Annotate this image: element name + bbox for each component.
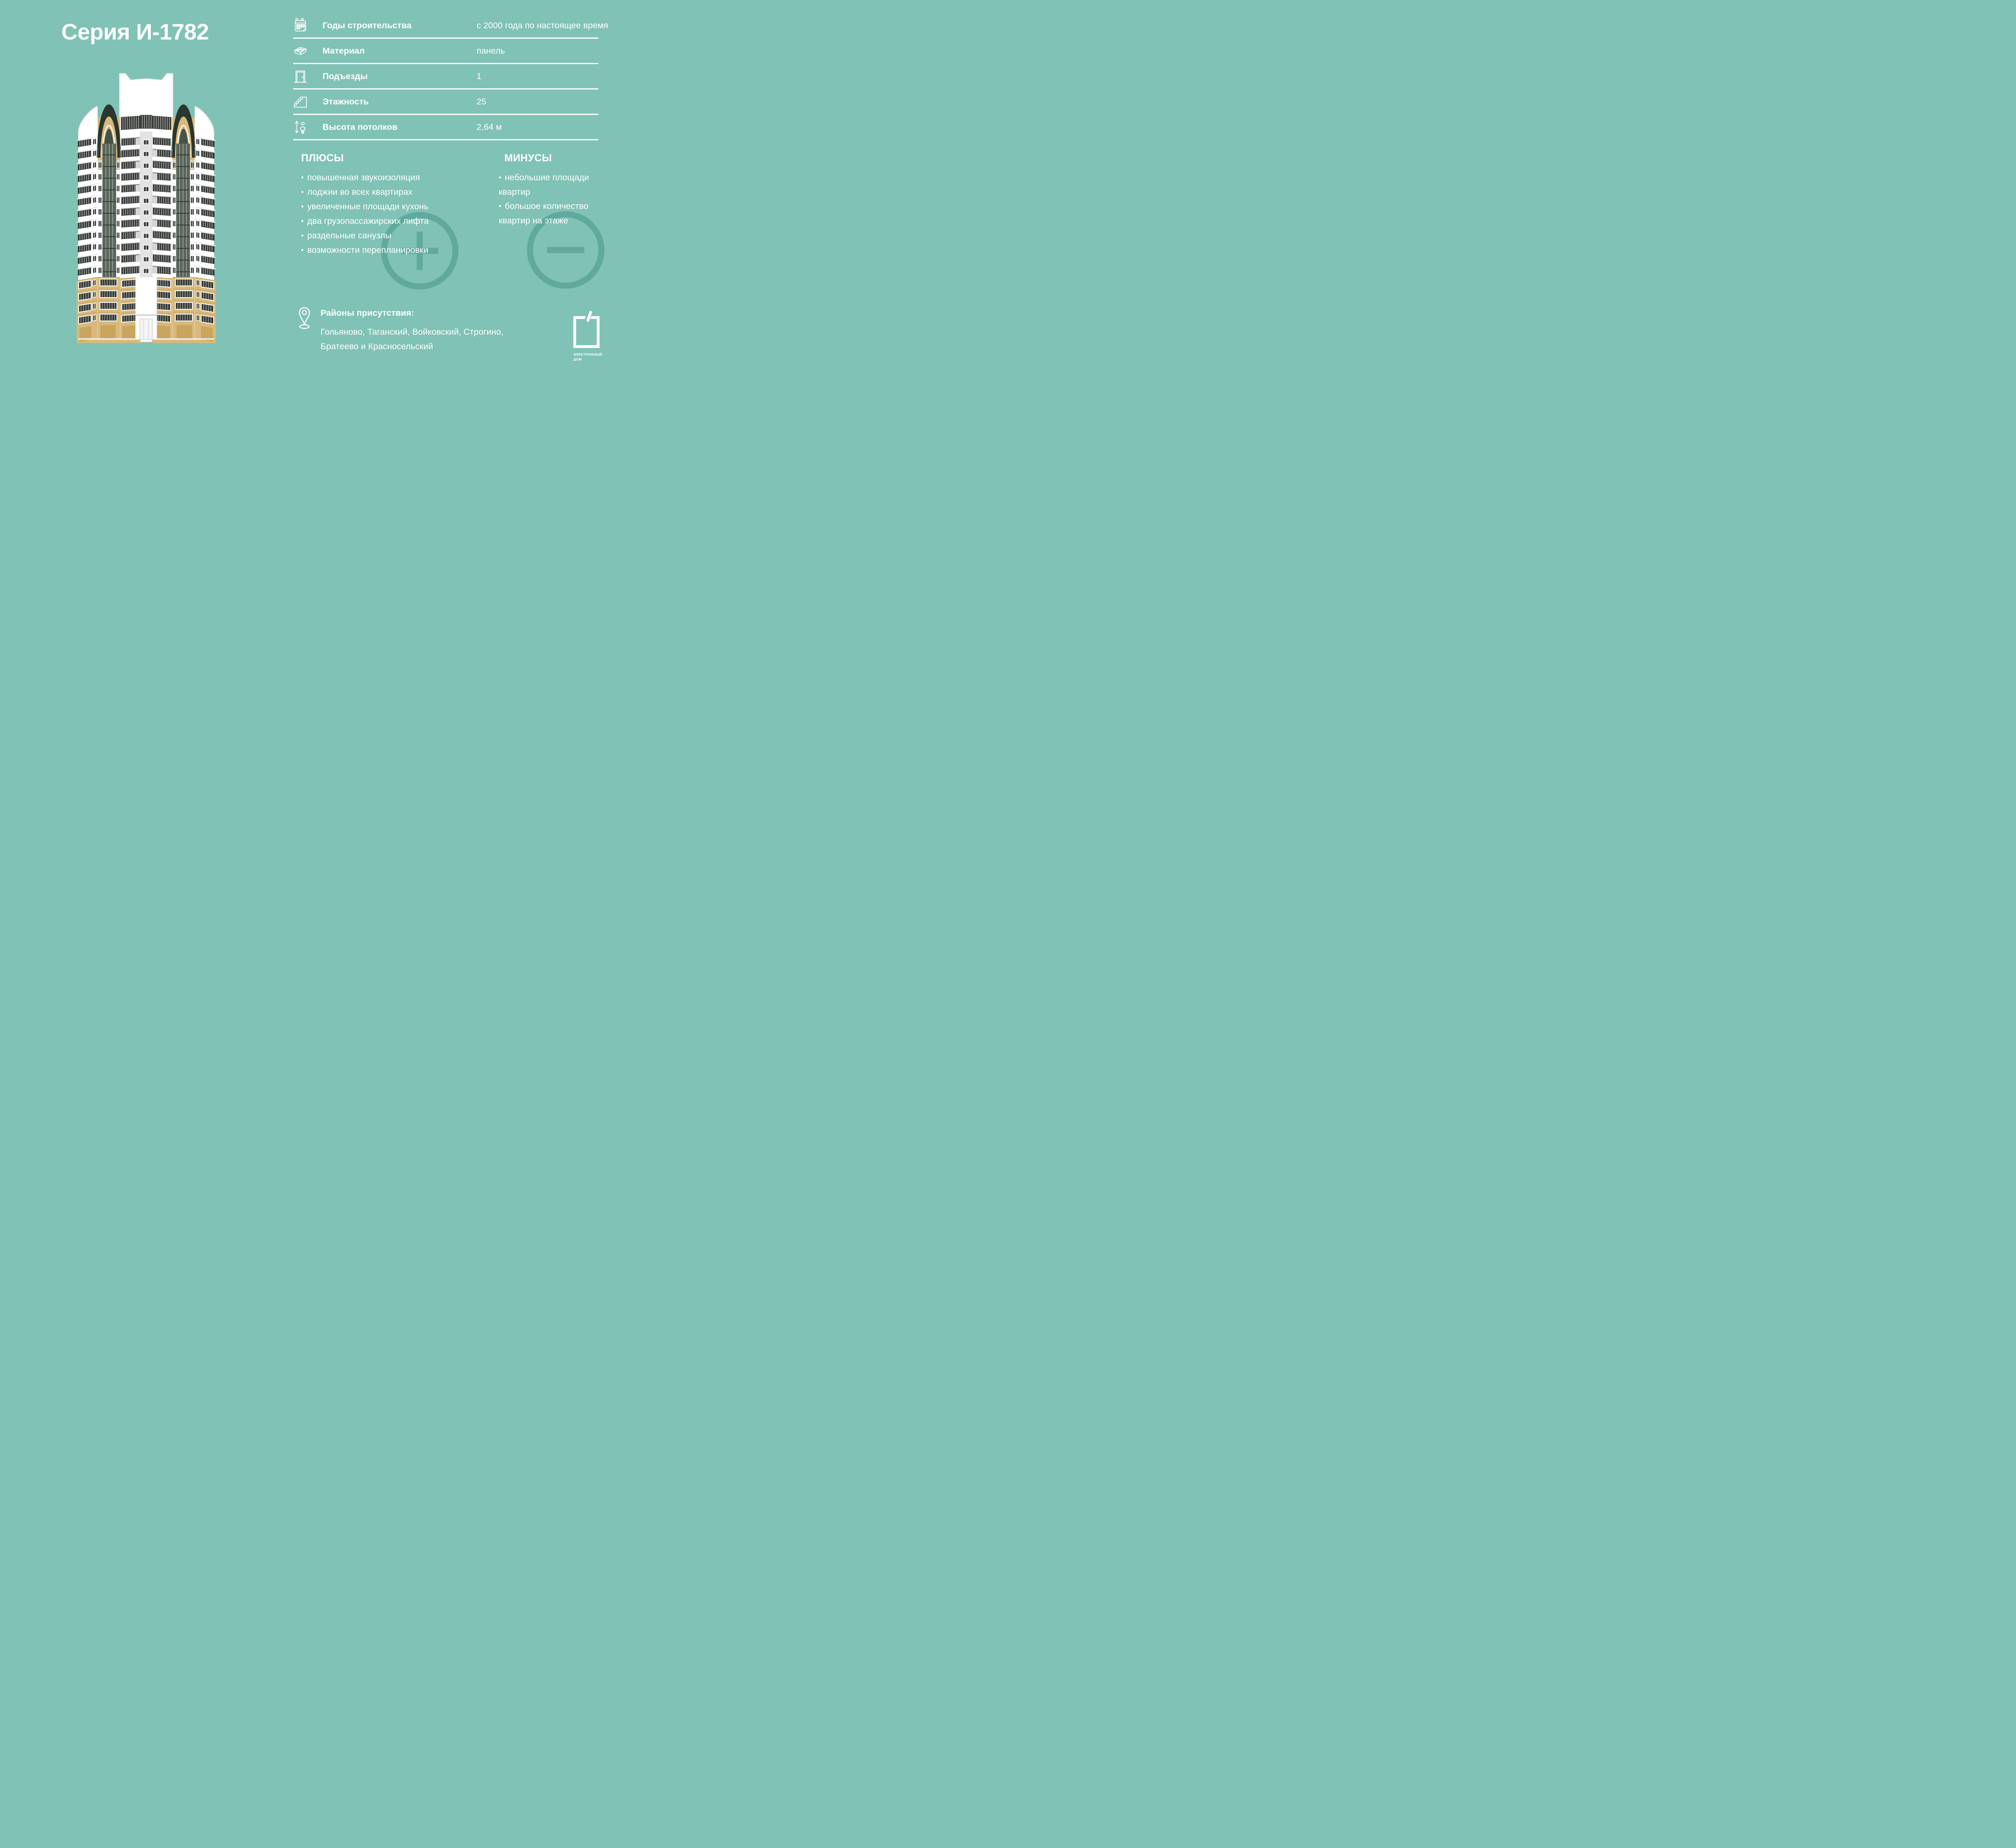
districts-text: Гольяново, Таганский, Войковский, Строги… bbox=[321, 325, 504, 354]
page-title: Серия И-1782 bbox=[61, 19, 209, 45]
spec-label: Материал bbox=[323, 46, 365, 56]
calendar-icon bbox=[293, 17, 308, 34]
cons-list: •небольшие площади квартир •большое коли… bbox=[499, 171, 603, 228]
spec-label: Годы строительства bbox=[323, 21, 412, 31]
stairs-icon bbox=[293, 93, 308, 110]
spec-row-years: Годы строительства с 2000 года по настоя… bbox=[293, 13, 598, 39]
cons-heading: МИНУСЫ bbox=[504, 152, 552, 164]
spec-row-entrances: Подъезды 1 bbox=[293, 64, 598, 90]
spec-label: Этажность bbox=[323, 97, 369, 107]
spec-value: панель bbox=[477, 46, 505, 56]
spec-row-material: Материал панель bbox=[293, 39, 598, 64]
spec-row-ceiling: Высота потолков 2,64 м bbox=[293, 115, 598, 140]
building-illustration bbox=[77, 61, 216, 343]
door-icon bbox=[293, 67, 308, 85]
pros-heading: ПЛЮСЫ bbox=[301, 152, 344, 164]
spec-label: Подъезды bbox=[323, 71, 368, 81]
pros-item: •повышенная звукоизоляция bbox=[301, 171, 429, 185]
bullet-dot: • bbox=[301, 243, 304, 257]
pros-item: •увеличенные площади кухонь bbox=[301, 200, 429, 214]
districts-heading: Районы присутствия: bbox=[321, 308, 414, 318]
spec-row-floors: Этажность 25 bbox=[293, 90, 598, 115]
cons-item: •небольшие площади квартир bbox=[499, 171, 603, 199]
bullet-dot: • bbox=[301, 171, 304, 185]
cons-item: •большое количество квартир на этаже bbox=[499, 199, 603, 228]
bullet-dot: • bbox=[301, 185, 304, 199]
bullet-dot: • bbox=[301, 200, 304, 214]
pros-item: •лоджии во всех квартирах bbox=[301, 185, 429, 200]
bullet-dot: • bbox=[499, 199, 501, 213]
brick-icon bbox=[293, 42, 308, 60]
spec-value: с 2000 года по настоящее время bbox=[477, 21, 608, 31]
pros-item: •возможности перепланировки bbox=[301, 243, 429, 258]
spec-value: 2,64 м bbox=[477, 122, 502, 132]
pros-list: •повышенная звукоизоляция •лоджии во все… bbox=[301, 171, 429, 258]
location-pin-icon bbox=[297, 306, 312, 331]
bullet-dot: • bbox=[499, 171, 501, 185]
infographic-page: Серия И-1782 Годы строительства с 2000 г… bbox=[0, 0, 638, 370]
pros-item: •два грузопассажирских лифта bbox=[301, 214, 429, 229]
spec-label: Высота потолков bbox=[323, 122, 398, 132]
ceiling-height-icon bbox=[293, 118, 308, 136]
bullet-dot: • bbox=[301, 229, 304, 243]
districts-line: Братеево и Красносельский bbox=[321, 339, 504, 354]
spec-value: 25 bbox=[477, 97, 486, 107]
spec-table: Годы строительства с 2000 года по настоя… bbox=[293, 13, 598, 140]
bullet-dot: • bbox=[301, 214, 304, 228]
districts-line: Гольяново, Таганский, Войковский, Строги… bbox=[321, 325, 504, 339]
logo-text: ЭЛЕКТРОННЫЙ ДОМ bbox=[573, 352, 602, 362]
spec-value: 1 bbox=[477, 71, 481, 81]
pros-item: •раздельные санузлы bbox=[301, 229, 429, 243]
minus-bar bbox=[547, 247, 584, 253]
